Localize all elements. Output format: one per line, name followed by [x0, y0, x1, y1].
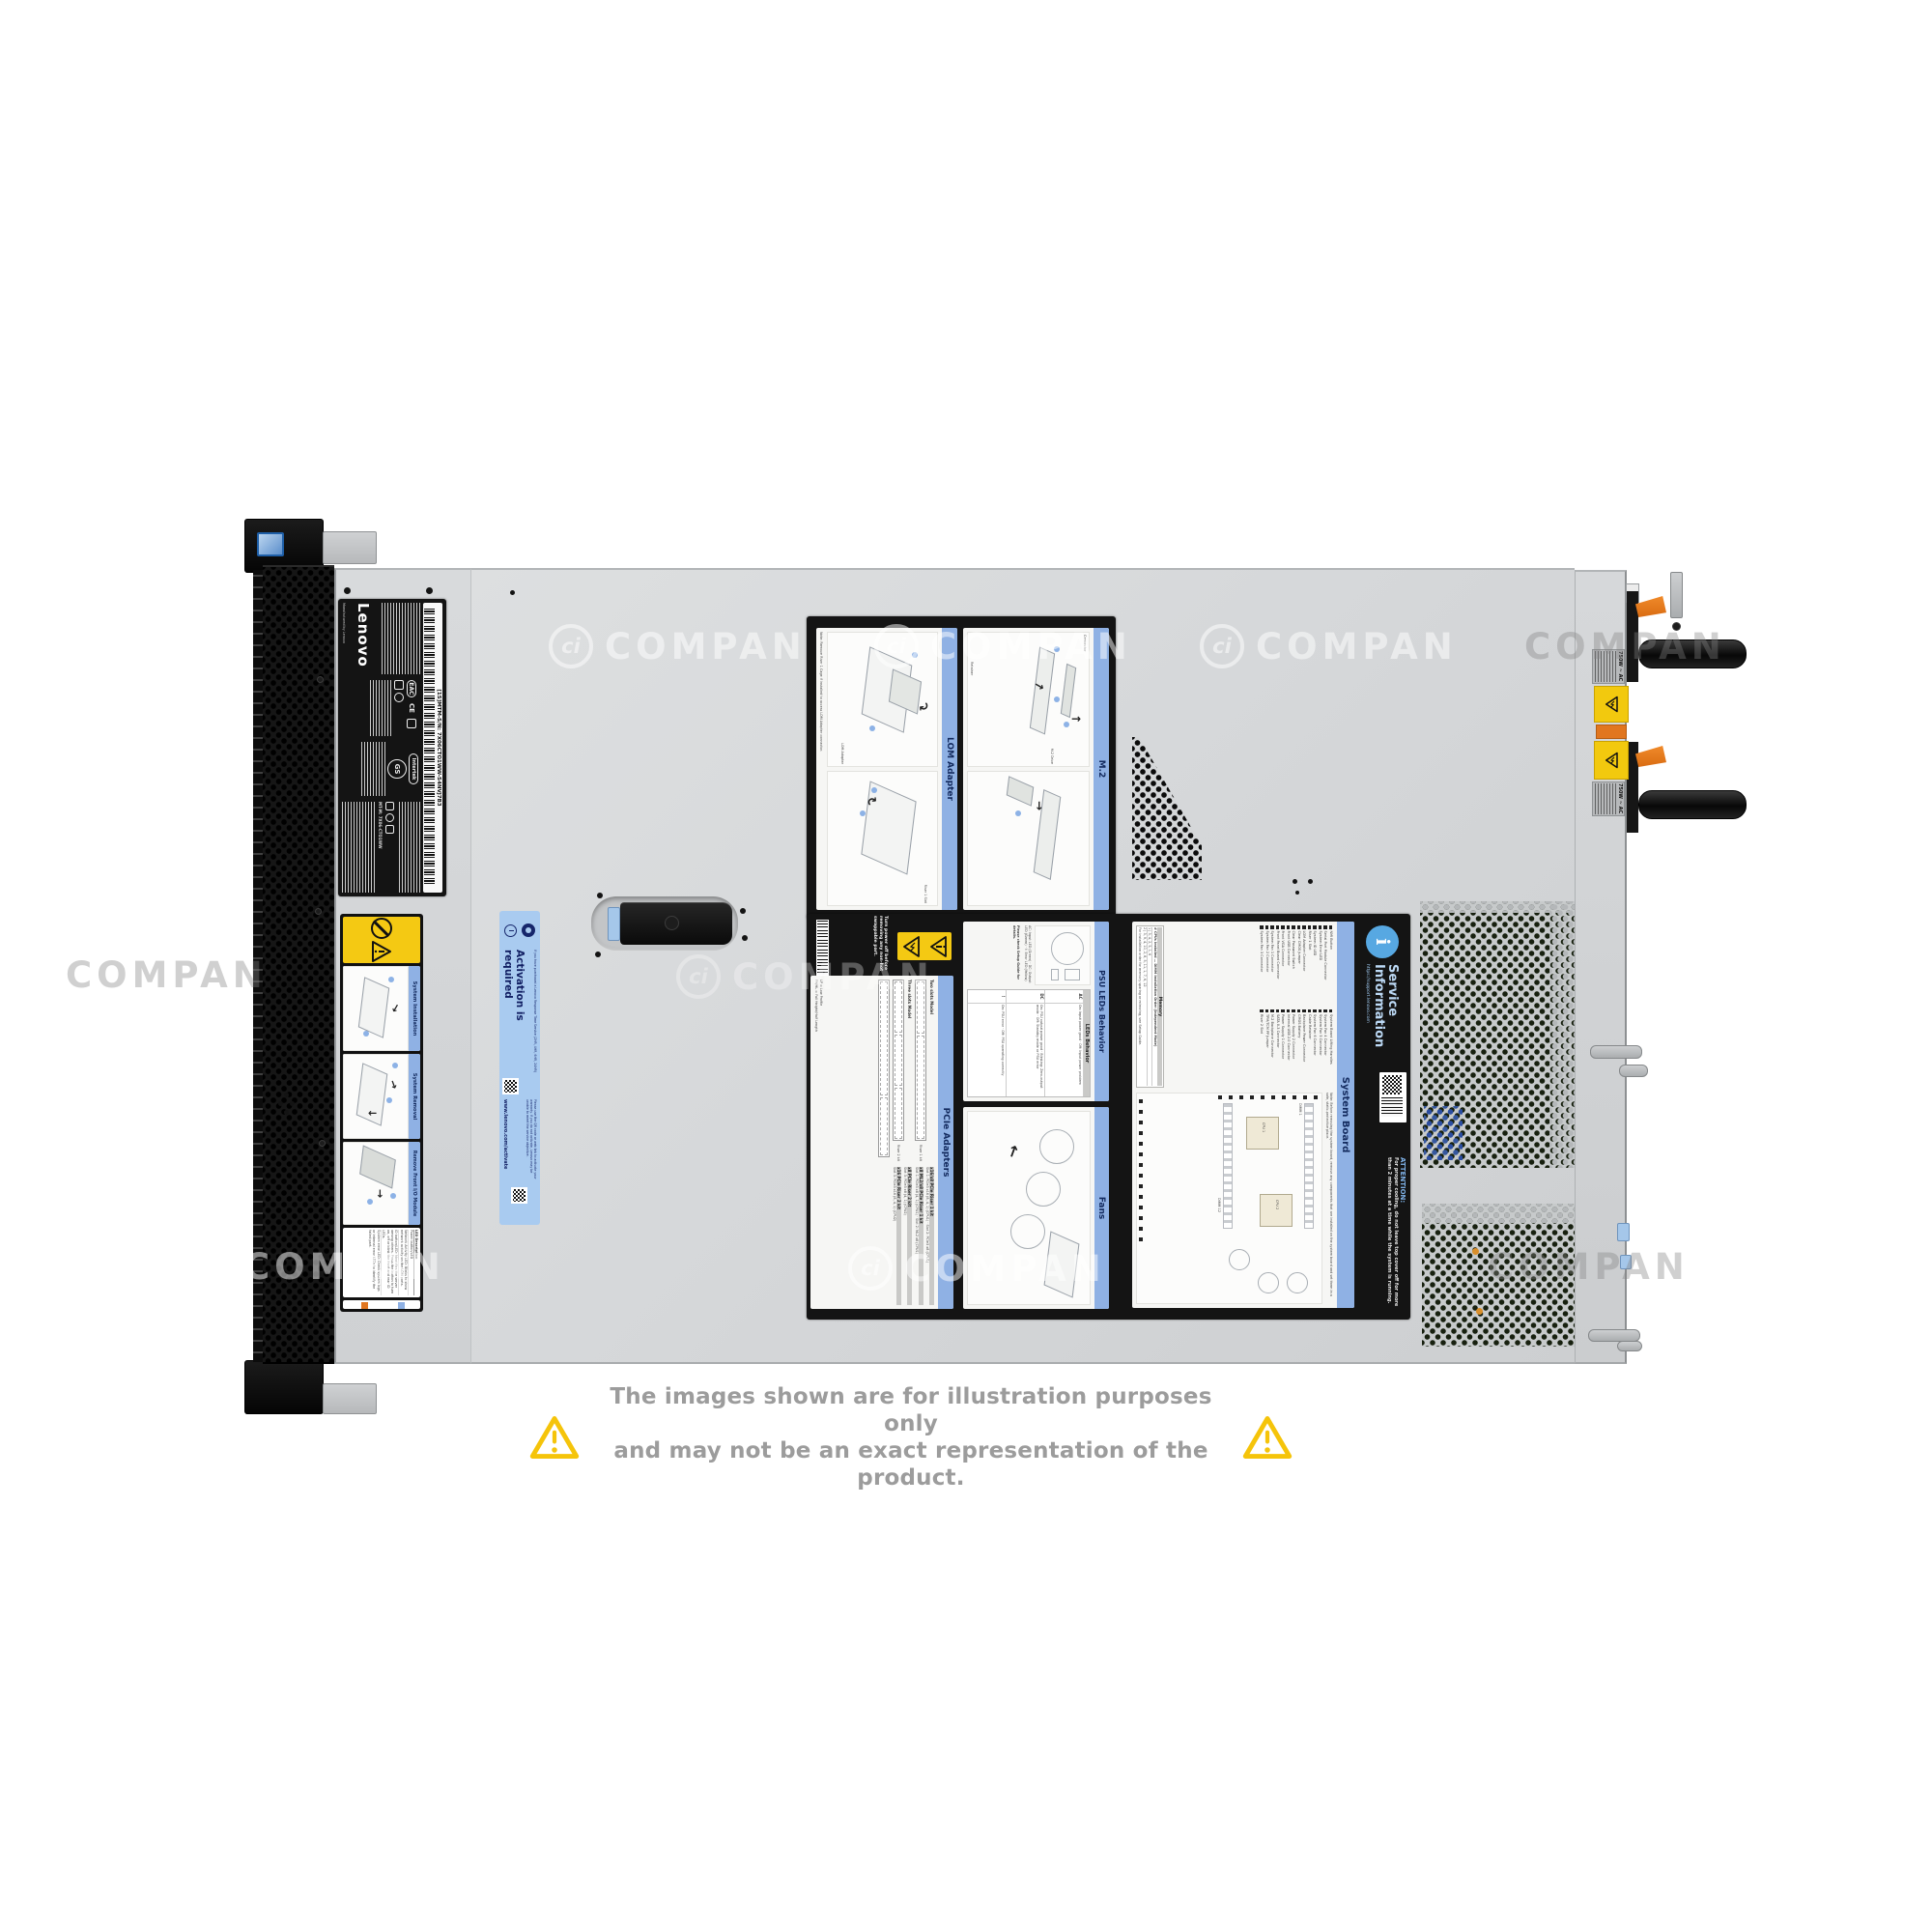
disclaimer-text: The images shown are for illustration pu…: [599, 1383, 1223, 1492]
cpu2-label: CPU 2: [1275, 1200, 1279, 1209]
fan-circle: [1229, 1249, 1250, 1270]
section-diagram: →: [343, 966, 409, 1051]
serial-barcode: [424, 609, 435, 887]
board-item: System Fan 6 Connector: [1313, 1009, 1318, 1089]
screw-hole: [742, 935, 748, 941]
turn-power-off-warning: Turn power off before removing any non-h…: [867, 916, 893, 976]
lom-note: Note: Remove Riser 1 Cage if installed t…: [816, 628, 823, 910]
kit-name: x16 PCIe Riser 2 kit: [896, 1167, 901, 1305]
warning-triangle-icon: [1242, 1414, 1293, 1461]
panel-body: NMI Button Serial Port Module Connector …: [1132, 922, 1337, 1308]
kit-entry: x16 PCIe Riser 2 kitSlot 3: PCIe3 x16 (8…: [892, 1167, 900, 1305]
mark-row: [385, 802, 394, 893]
latch-screw: [665, 916, 679, 930]
slash: [373, 920, 389, 936]
footnotes: LP = Low Profile FH/HL = Full Height/Hal…: [814, 980, 823, 1161]
board-items-left: NMI Button Serial Port Module Connector …: [1166, 925, 1333, 1005]
m2-drive: [1061, 664, 1076, 718]
lom-diagram-2: ↷ Riser 1 Slot: [827, 771, 938, 906]
panel-title: M.2: [1094, 628, 1109, 910]
led-row: ID button/LED: Identifies the server amo…: [381, 1230, 399, 1295]
hazard-sticker: [897, 932, 952, 960]
callout-dot: [1064, 722, 1069, 727]
dimm-label: DIMM 12: [1217, 1198, 1221, 1212]
table-row: DC On: PSU output power good · Blinking:…: [1007, 990, 1045, 1096]
service-info-icon: ℹ: [1366, 925, 1399, 958]
dimm-label: DIMM 1: [1298, 1103, 1302, 1116]
qr-code: [512, 1187, 528, 1204]
thumbscrew-2: [1617, 1341, 1642, 1351]
disclaimer-line-2: and may not be an exact representation o…: [599, 1437, 1223, 1492]
psu2-hazard-sticker: [1594, 741, 1629, 780]
psu1-handle: [1638, 639, 1747, 668]
vent-blank-holes: [1422, 1204, 1575, 1223]
label-barcode: [816, 920, 829, 976]
regulatory-microtext: [382, 603, 420, 674]
callout-dot: [1054, 646, 1060, 652]
kit-slots: Slot 3: PCIe3 x8 (4, 1) (CPU2): [903, 1167, 907, 1305]
mfg-text: Manufactured by Lenovo: [342, 603, 346, 674]
board-item: Front USB Connector: [1287, 925, 1292, 1005]
bolt-triangle-icon: [901, 935, 921, 958]
arrow: →: [388, 1001, 404, 1014]
regulatory-microtext: [360, 742, 385, 796]
bezel-screw: [317, 676, 324, 683]
label-body: Lenovo Manufactured by Lenovo EAC CE Int…: [342, 603, 420, 893]
ce-mark: CE: [407, 700, 416, 716]
board-item: System Fan 4 Connector: [1323, 1009, 1328, 1089]
intel-xeon-badge: [257, 532, 284, 556]
behavior-cell: On: PSU output power good · Blinking: Ze…: [1007, 1004, 1044, 1096]
latch-touch-point: [608, 907, 620, 941]
cert-mark-icon: [385, 802, 394, 810]
board-item: System ID LED: [1313, 925, 1318, 1005]
psu1-release-tab: [1635, 596, 1666, 617]
activation-note-1: If you have purchased a Lenovo Response …: [533, 950, 537, 1073]
label-col-certs: EAC CE: [342, 680, 420, 736]
board-item: Front Panel Board Connector: [1276, 925, 1281, 1005]
front-bezel: [263, 565, 334, 1364]
attention-title: ATTENTION:: [1399, 1157, 1406, 1310]
board-item: Backplane Power Connector: [1302, 1009, 1307, 1089]
board-item: M.2 Backplane Connector: [1270, 1009, 1275, 1089]
kit-name: x8 ML2/x8 PCIe Riser 1 kit: [919, 1167, 923, 1305]
callout-number-row: [1139, 1099, 1143, 1244]
psu2-handle: [1638, 790, 1747, 819]
board-item: Clear CMOS Jumper: [1297, 925, 1302, 1005]
callout-label: Connector: [1083, 635, 1087, 652]
psu-led-legend: AC: Input LED (Green) · DC: Output LED (…: [1023, 925, 1032, 985]
psu-microtext: [1595, 651, 1616, 682]
psu2-release-tab: [1635, 746, 1666, 767]
regulatory-microtext: [370, 680, 391, 736]
chassis-outline: [1044, 1231, 1080, 1297]
screw-hole: [1308, 879, 1313, 884]
panel-title: System Board: [1337, 922, 1354, 1308]
bolt-triangle-icon: [1604, 752, 1619, 769]
psu1-hazard-sticker: [1594, 686, 1629, 723]
activation-url-block: Please use the QR code or web link to ac…: [502, 1099, 537, 1182]
m2-panel: M.2 → → Connector M.2 Drive Retainer →: [963, 628, 1109, 910]
callout-dot: [860, 810, 866, 816]
eac-mark: EAC: [407, 680, 416, 697]
system-board-panel: System Board NMI Button Serial Port Modu…: [1132, 922, 1354, 1308]
section-title: System Installation: [409, 966, 420, 1051]
riser-row: Riser 2 kit: [893, 980, 904, 1161]
touch-point-swatch: [398, 1302, 405, 1309]
board-item: CMOS Battery: [1297, 1009, 1302, 1089]
rack-ear-top-tab: [323, 531, 377, 564]
memory-title: Memory: [1157, 927, 1162, 1086]
callout-dot: [390, 1193, 396, 1199]
callout-dot: [871, 787, 877, 793]
screw-hole: [597, 893, 603, 898]
intertek-mark: Intertek: [409, 753, 418, 785]
behavior-cell: On: Input power good · Off: Input power …: [1045, 1004, 1083, 1096]
callout-label: M.2 Drive: [1050, 749, 1054, 764]
kit-slots: Slot 3: PCIe3 x16 (8, 4, 1) (CPU2): [892, 1167, 895, 1305]
board-item: Front VGA Connector: [1281, 925, 1286, 1005]
kit-name: x8 PCIe Riser 2 kit: [907, 1167, 912, 1305]
service-information-branding: ℹ Service Information https://support.le…: [1356, 923, 1408, 1068]
psu1-spec-label: 750W ~ AC: [1592, 649, 1625, 684]
fan-circle: [1258, 1272, 1279, 1293]
activation-icons: [502, 916, 537, 945]
activation-title: Activation is required: [502, 950, 526, 1073]
arrow: →: [1071, 712, 1081, 725]
section-system-removal: System Removal → →: [343, 1054, 420, 1139]
riser-kit-label: Riser 1 kit: [919, 1145, 923, 1161]
psu-diagram-col: AC: Input LED (Green) · DC: Output LED (…: [967, 925, 1091, 985]
board-items-right: System Board Lifting Handles System Fan …: [1166, 1009, 1333, 1089]
footnote: LP = Low Profile: [818, 980, 822, 1161]
callout-dot: [912, 652, 918, 658]
rail-bracket: [1670, 572, 1683, 618]
kit-entry: x8 PCIe Riser 2 kitSlot 3: PCIe3 x8 (4, …: [903, 1167, 912, 1305]
board-item: Power Supply 2 Connector: [1292, 1009, 1296, 1089]
callout-dot: [386, 1097, 392, 1103]
cert-mark-icon: [407, 719, 416, 728]
callout-label: Retainer: [970, 662, 974, 675]
callout-label: LOM Adapter: [839, 743, 843, 764]
kit-name: x16/x8 PCIe Riser 1 kit: [929, 1167, 934, 1305]
psu-outline-diagram: [1035, 925, 1091, 985]
led-row: Power button/LED: [408, 1230, 412, 1295]
model-text: MT-M: 7X06-CTO1WW: [378, 802, 383, 893]
board-item: SATA 0-3 Connector: [1276, 1009, 1281, 1089]
bolt-triangle-icon: [1604, 696, 1619, 713]
led-cell: !: [968, 990, 1006, 1004]
cert-mark-icon: [385, 813, 394, 822]
callout-dot: [367, 1199, 373, 1205]
service-info-text: Service Information https://support.leno…: [1366, 964, 1400, 1047]
bezel-screw: [315, 908, 322, 915]
kit-entry: x8 ML2/x8 PCIe Riser 1 kitSlot 1: PCIe3 …: [914, 1167, 923, 1305]
board-item: LOM Adapter Connector: [1302, 925, 1307, 1005]
board-item: System Fan 3 Connector: [1260, 925, 1264, 1005]
arrow: →: [1033, 801, 1046, 810]
watermark: COMPAN: [66, 954, 268, 996]
screw-hole: [740, 908, 746, 914]
qr-code: [502, 1078, 519, 1094]
lenovo-wordmark: Lenovo: [355, 603, 373, 674]
callout-number-col: [1211, 1095, 1318, 1099]
board-diagram-col: Note: Before removing the system board, …: [1136, 1093, 1333, 1304]
rear-vent-2: [1422, 1204, 1575, 1347]
label-col-brand: Lenovo Manufactured by Lenovo: [342, 603, 420, 674]
table-title: LEDs Behavior: [1084, 990, 1090, 1096]
warning-triangle-icon: [529, 1414, 580, 1461]
fan-circle: [1039, 1129, 1074, 1164]
riser-bar: [878, 980, 890, 1157]
section-remove-front-io: Remove Front I/O Module →: [343, 1142, 420, 1225]
behavior-cell: On: PSU error · Off: PSU operating corre…: [968, 1004, 1006, 1096]
gear-icon: [522, 923, 535, 937]
psu-led-block: [1051, 969, 1059, 980]
vent-orange-dot: [1476, 1308, 1483, 1315]
riser-kit-label: Riser 2 kit: [896, 1145, 900, 1161]
section-diagram: →: [343, 1142, 409, 1225]
service-qr-sticker: [1379, 1072, 1406, 1122]
arrow: →: [386, 1078, 401, 1091]
vent-orange-dot: [1472, 1248, 1479, 1255]
blue-touch-tab: [1620, 1255, 1632, 1269]
board-item: Riser 1 Slot: [1308, 925, 1313, 1005]
cert-mark-icon: [385, 825, 394, 834]
model-label: Two slots Model: [929, 980, 934, 1161]
panel-body: ↷ LOM Adapter ↷ Riser 1 Slot: [823, 628, 942, 910]
board-note: Note: Before removing the system board, …: [1324, 1093, 1333, 1304]
panel-body: AC: Input LED (Green) · DC: Output LED (…: [963, 922, 1094, 1101]
callout-dot: [363, 1031, 369, 1037]
board-item: System Board Lifting Handles: [1329, 1009, 1334, 1089]
led-table-header: LED Description: [413, 1230, 418, 1295]
footnote: FH/HL = Full Height/Half Length: [814, 980, 818, 1161]
bezel-hole: [290, 1101, 295, 1106]
blue-touch-tab: [1617, 1223, 1630, 1241]
warning-text: Turn power off before removing any non-h…: [872, 916, 889, 976]
psu2-rating: 750W ~ AC: [1617, 783, 1623, 814]
bezel-screw: [319, 1140, 326, 1147]
section-title: Remove Front I/O Module: [409, 1142, 420, 1225]
screw-hole: [1295, 891, 1299, 895]
callout-dot: [869, 725, 875, 731]
lom-adapter-panel: LOM Adapter ↷ LOM Adapter ↷ Riser 1 Slot…: [816, 628, 957, 910]
disclaimer-line-1: The images shown are for illustration pu…: [599, 1383, 1223, 1437]
qr-code: [1381, 1074, 1403, 1095]
fan-circle: [1287, 1272, 1308, 1293]
no-touch-icon: [371, 918, 392, 939]
activation-note-2: Please use the QR code or web link to ac…: [526, 1099, 537, 1182]
vent-blank-holes: [1549, 901, 1575, 1168]
rail-screw: [1672, 622, 1681, 631]
cert-mark-icon: [394, 680, 404, 690]
arrow: →: [374, 1189, 386, 1198]
board-item: Serial Port Module Connector: [1323, 925, 1328, 1005]
serial-barcode-block: [1S]MTM-S/N: 7X06CTO1WW-S4NVJ7B3: [423, 603, 442, 893]
panel-title: PCIe Adapters: [938, 976, 953, 1309]
hot-swap-swatch: [361, 1302, 368, 1309]
arrow: →: [1002, 1142, 1023, 1160]
board-diagram: CPU 1 CPU 2 DIMM 1 DIMM 12: [1136, 1093, 1322, 1304]
board-item: Riser 2 Slot: [1260, 1009, 1264, 1089]
arrow: →: [368, 1107, 377, 1120]
board-item: Internal USB 2.0 Connector: [1287, 1009, 1292, 1089]
cert-mark-icon: [394, 693, 404, 702]
led-behavior-table: LEDs Behavior AC On: Input power good · …: [967, 989, 1091, 1097]
psu1-rating: 750W ~ AC: [1617, 651, 1623, 682]
fans-panel: Fans →: [963, 1107, 1109, 1309]
thumbscrew-1: [1619, 1065, 1648, 1077]
screw-hole: [510, 590, 515, 595]
riser-row: [878, 980, 890, 1161]
gs-mark: GS: [387, 759, 407, 779]
legend: Touch point Hot swap point: [343, 1300, 420, 1309]
riser-row: Riser 1 kit: [915, 980, 926, 1161]
screw-hole: [1293, 879, 1297, 884]
legend-touch-point: Touch point: [397, 1302, 406, 1307]
memory-note: For installation order for memory sparin…: [1138, 927, 1142, 1086]
bezel-hole: [278, 1101, 283, 1106]
callout-dot: [392, 1063, 398, 1068]
board-legend-col: NMI Button Serial Port Module Connector …: [1136, 925, 1333, 1088]
retainer: [1007, 776, 1034, 807]
led-row: System error LED: Check system logs or i…: [368, 1230, 381, 1295]
led-description-table: LED Description Power button/LED Network…: [343, 1228, 420, 1297]
table-row: ! On: PSU error · Off: PSU operating cor…: [968, 990, 1007, 1096]
kit-slots: Slot 1: PCIe3 x16 (8, 4, 1) (CPU1) · Slo…: [925, 1167, 929, 1305]
board-item: Clear Password Switch: [1292, 925, 1296, 1005]
panel-title: Fans: [1094, 1107, 1109, 1309]
clock-hand: [509, 930, 514, 932]
service-title-1: Service: [1386, 964, 1400, 1047]
label-col-model: MT-M: 7X06-CTO1WW: [342, 802, 420, 893]
panel-body: → → Connector M.2 Drive Retainer →: [963, 628, 1094, 910]
psu-orange-label: [1596, 724, 1627, 739]
board-item: System Fan 1 Connector: [1270, 925, 1275, 1005]
regulatory-microtext: [397, 802, 420, 893]
rack-ear-bottom-tab: [323, 1383, 377, 1414]
fans-diagram: →: [967, 1111, 1091, 1305]
section-system-installation: System Installation →: [343, 966, 420, 1051]
bezel-hole: [284, 1093, 289, 1097]
module-outline: [359, 1145, 396, 1188]
callout-dot: [1015, 810, 1021, 816]
section-title: System Removal: [409, 1054, 420, 1139]
memory-table: Memory # CPUs Installed — DIMM Installat…: [1136, 925, 1164, 1088]
riser-bar: [893, 980, 904, 1141]
activation-label: If you have purchased a Lenovo Response …: [499, 911, 540, 1225]
riser-bar: [915, 980, 926, 1141]
kit-slots: Slot 1: PCIe3 x8 (4, 1) (CPU1) · Slot 2:…: [914, 1167, 918, 1305]
memory-header: # CPUs Installed — DIMM Installation Ord…: [1152, 927, 1156, 1086]
table-row: AC On: Input power good · Off: Input pow…: [1045, 990, 1084, 1096]
m2-diagram-2: →: [967, 771, 1090, 906]
service-title-2: Information: [1373, 964, 1386, 1047]
clock-icon: [504, 924, 517, 937]
rear-vent-1: [1420, 901, 1575, 1168]
panel-body: Two slots Model Riser 1 kit Three slots …: [810, 976, 938, 1309]
led-cell: AC: [1045, 990, 1083, 1004]
dimm-bank: [1223, 1103, 1233, 1229]
lenovo-regulatory-label: [1S]MTM-S/N: 7X06CTO1WW-S4NVJ7B3 Lenovo …: [338, 599, 446, 896]
cpu1-label: CPU 1: [1262, 1122, 1265, 1132]
bezel-hole: [284, 1110, 289, 1115]
server-outline: [358, 977, 389, 1038]
panel-title: PSU LEDs Behavior: [1094, 922, 1109, 1101]
regulatory-microtext: [342, 802, 375, 893]
led-cell: DC: [1007, 990, 1044, 1004]
serial-number-text: [1S]MTM-S/N: 7X06CTO1WW-S4NVJ7B3: [436, 609, 441, 887]
screw-hole: [426, 587, 433, 594]
board-item: System Error LED: [1319, 925, 1323, 1005]
attention-block: ATTENTION: For proper cooling, do not le…: [1366, 1155, 1408, 1312]
lom-diagram-1: ↷ LOM Adapter: [827, 632, 938, 767]
screw-hole: [344, 587, 351, 594]
warning-header: [343, 917, 420, 963]
activation-url: www.lenovo.com/activate: [502, 1099, 508, 1182]
service-url: https://support.lenovo.com: [1366, 964, 1371, 1047]
legend-hot-swap: Hot swap point: [358, 1302, 371, 1307]
psu-socket: [1065, 969, 1080, 980]
warning-triangle-icon: [371, 940, 392, 963]
exclamation-triangle-icon: [928, 935, 948, 958]
gear-hole: [526, 927, 531, 933]
attention-text: For proper cooling, do not leave top cov…: [1386, 1157, 1399, 1310]
led-row: Network Activity LED: Blinks to show net…: [398, 1230, 408, 1295]
riser-diagrams: Two slots Model Riser 1 kit Three slots …: [814, 980, 934, 1161]
psu-leds-panel: PSU LEDs Behavior AC: Input LED (Green) …: [963, 922, 1109, 1101]
board-item: Power Supply 1 Connector: [1281, 1009, 1286, 1089]
dimm-bank: [1304, 1103, 1314, 1229]
vent-blue-component: [1424, 1106, 1463, 1160]
fan-circle: [1026, 1172, 1061, 1207]
pcie-adapters-panel: PCIe Adapters Two slots Model Riser 1 ki…: [810, 976, 953, 1309]
disclaimer-banner: The images shown are for illustration pu…: [529, 1383, 1293, 1492]
board-item: System Fan 5 Connector: [1319, 1009, 1323, 1089]
board-item: NMI Button: [1329, 925, 1334, 1005]
mini-barcode: [1381, 1097, 1403, 1117]
system-instruction-label: System Installation → System Removal → →…: [340, 914, 423, 1312]
model-label: Three slots Model: [907, 980, 912, 1161]
label-col-intertek: Intertek GS: [342, 742, 420, 796]
kit-entry: x16/x8 PCIe Riser 1 kitSlot 1: PCIe3 x16…: [925, 1167, 934, 1305]
callout-dot: [388, 977, 394, 982]
board-item: TPM/TCM PP Jumper: [1265, 1009, 1270, 1089]
thumbscrew-latch-1: [1590, 1045, 1642, 1059]
psu-note: Please check Setup Guide for details.: [1011, 925, 1020, 985]
fan-circle: [1010, 1214, 1045, 1249]
kit-list: x16/x8 PCIe Riser 1 kitSlot 1: PCIe3 x16…: [814, 1167, 934, 1305]
screw-hole: [595, 952, 601, 957]
callout-label: Riser 1 Slot: [923, 885, 927, 903]
psu-fan-circle: [1051, 932, 1084, 965]
vent-blank-holes: [1420, 901, 1575, 913]
board-item-columns: NMI Button Serial Port Module Connector …: [1166, 925, 1333, 1088]
section-diagram: → →: [343, 1054, 409, 1139]
board-item: Cable Retainer: [1308, 1009, 1313, 1089]
rack-ear-bottom: [244, 1360, 324, 1414]
psu2-spec-label: 750W ~ AC: [1592, 781, 1625, 816]
psu-microtext: [1595, 783, 1616, 814]
board-item: System Fan 2 Connector: [1265, 925, 1270, 1005]
panel-title: LOM Adapter: [942, 628, 957, 910]
m2-diagram-1: → → Connector M.2 Drive Retainer: [967, 632, 1090, 767]
callout-dot: [1054, 696, 1060, 702]
activation-title-block: If you have purchased a Lenovo Response …: [502, 950, 537, 1073]
